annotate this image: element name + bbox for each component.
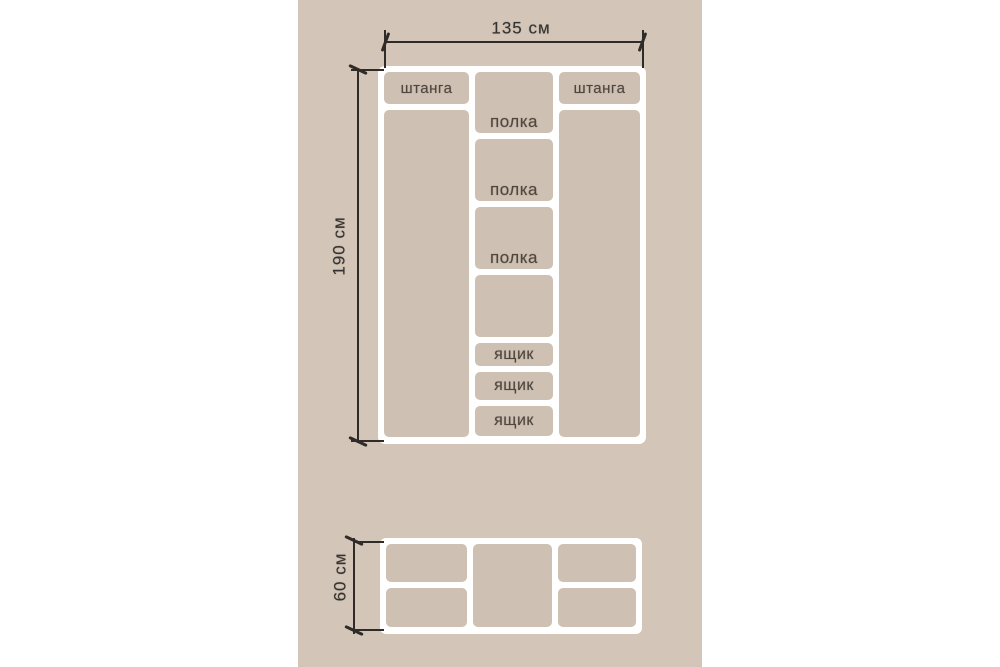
hanging-section-right xyxy=(559,110,640,437)
drawer-label-1: ящик xyxy=(494,347,534,363)
rod-label-right: штанга xyxy=(574,81,626,96)
rod-compartment-left: штанга xyxy=(384,72,469,104)
drawer-label-3: ящик xyxy=(494,413,534,429)
top-view-right-front xyxy=(558,544,636,582)
rod-label-left: штанга xyxy=(401,81,453,96)
shelf-compartment-1: полка xyxy=(475,72,553,133)
dimension-height-line xyxy=(357,70,359,443)
open-compartment xyxy=(475,275,553,337)
top-view-left-back xyxy=(386,588,467,627)
top-view-middle xyxy=(473,544,552,627)
shelf-label-1: полка xyxy=(490,113,538,130)
width-value: 135 см xyxy=(491,20,550,37)
hanging-section-left xyxy=(384,110,469,437)
shelf-compartment-2: полка xyxy=(475,139,553,201)
depth-value: 60 см xyxy=(332,553,349,602)
rod-compartment-right: штанга xyxy=(559,72,640,104)
top-view-right-back xyxy=(558,588,636,627)
drawer-3: ящик xyxy=(475,406,553,436)
height-value: 190 см xyxy=(331,216,348,275)
top-view-left-front xyxy=(386,544,467,582)
dimension-width-line xyxy=(385,41,643,43)
dimension-depth-line xyxy=(353,538,355,634)
drawer-2: ящик xyxy=(475,372,553,400)
shelf-label-2: полка xyxy=(490,181,538,198)
shelf-label-3: полка xyxy=(490,249,538,266)
wardrobe-dimension-diagram: штанга полка полка полка ящик ящик ящик … xyxy=(0,0,1000,667)
drawer-1: ящик xyxy=(475,343,553,366)
drawer-label-2: ящик xyxy=(494,378,534,394)
shelf-compartment-3: полка xyxy=(475,207,553,269)
